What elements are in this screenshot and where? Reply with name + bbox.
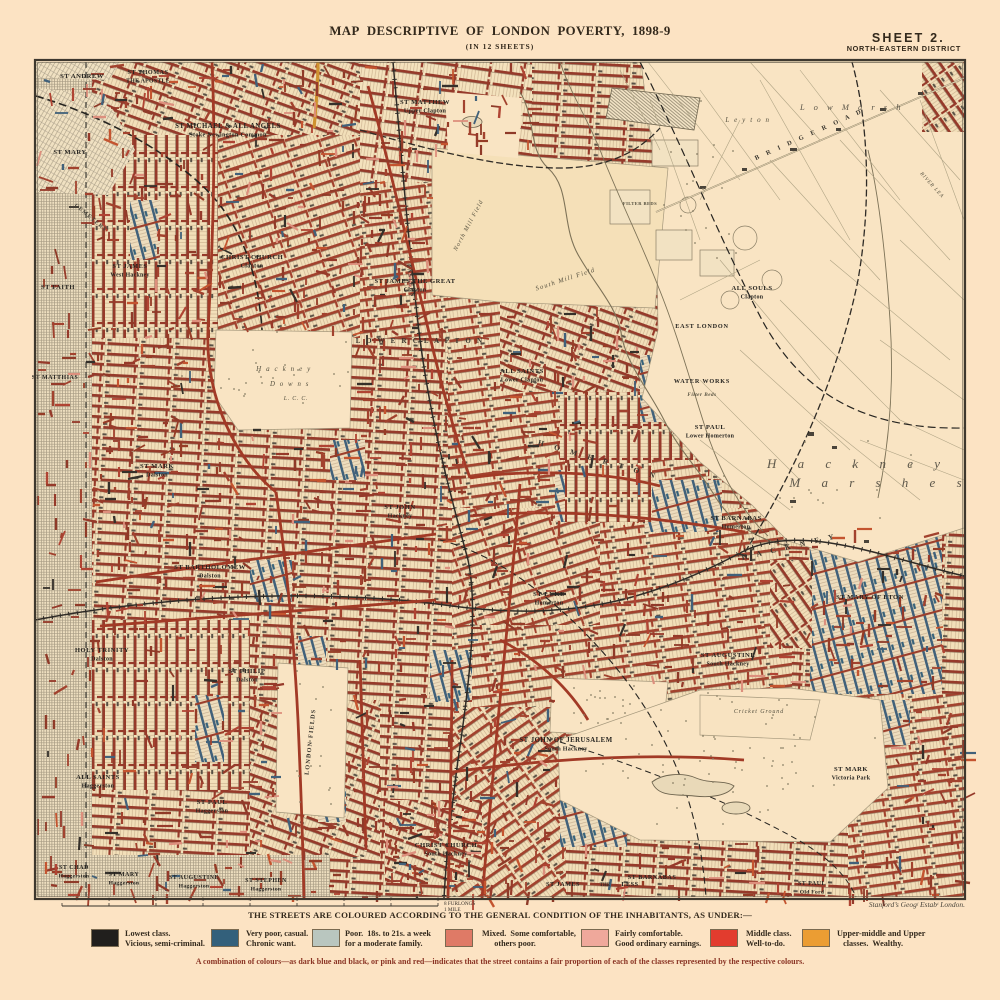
- svg-text:ST MARY OF ETON: ST MARY OF ETON: [836, 594, 904, 601]
- svg-text:5: 5: [296, 897, 299, 903]
- svg-text:ST BARNABAS: ST BARNABAS: [628, 874, 677, 881]
- svg-text:ST JAMES: ST JAMES: [113, 263, 148, 270]
- svg-text:D o w n s: D o w n s: [269, 381, 310, 388]
- svg-text:ST THOMAS: ST THOMAS: [128, 69, 169, 76]
- svg-text:ST MARY: ST MARY: [109, 872, 140, 878]
- svg-text:EAST LONDON: EAST LONDON: [675, 323, 729, 330]
- svg-text:ST PAUL: ST PAUL: [695, 424, 726, 431]
- svg-text:Dalston: Dalston: [199, 574, 221, 580]
- svg-text:ST MATTHIAS: ST MATTHIAS: [32, 375, 79, 381]
- svg-text:Victoria Park: Victoria Park: [832, 776, 871, 782]
- svg-text:2: 2: [155, 897, 158, 903]
- svg-text:South Hackney: South Hackney: [424, 852, 467, 858]
- svg-text:Haggerston: Haggerston: [251, 887, 282, 893]
- svg-text:Filter Beds: Filter Beds: [687, 392, 716, 398]
- svg-text:ST CHAD: ST CHAD: [59, 865, 89, 871]
- svg-text:ST MICHAEL & ALL ANGELS: ST MICHAEL & ALL ANGELS: [175, 123, 281, 130]
- svg-text:Haggerston: Haggerston: [82, 784, 115, 790]
- svg-text:Lower Homerton: Lower Homerton: [686, 434, 735, 440]
- svg-text:ST JOHN OF JERUSALEM: ST JOHN OF JERUSALEM: [519, 737, 612, 744]
- svg-text:ST JAMES THE GREAT: ST JAMES THE GREAT: [374, 278, 455, 285]
- svg-text:Upper Clapton: Upper Clapton: [404, 109, 447, 115]
- svg-text:Old Ford: Old Ford: [800, 890, 825, 896]
- svg-text:L O W E R C L A P T O N: L O W E R C L A P T O N: [356, 337, 484, 345]
- svg-text:Stoke Newington Common: Stoke Newington Common: [189, 132, 267, 139]
- svg-text:Dalston: Dalston: [146, 473, 168, 479]
- svg-text:ST ANDREW: ST ANDREW: [60, 73, 104, 80]
- svg-text:Homerton: Homerton: [722, 525, 751, 531]
- svg-text:Haggerston: Haggerston: [196, 809, 229, 815]
- svg-text:7: 7: [390, 897, 393, 903]
- svg-text:H a c k n e y: H a c k n e y: [255, 365, 312, 373]
- svg-text:Homerton: Homerton: [535, 601, 564, 607]
- svg-text:THE APOSTLE: THE APOSTLE: [126, 79, 170, 85]
- svg-text:ST BARTHOLOMEW: ST BARTHOLOMEW: [174, 564, 246, 571]
- svg-text:ST MARY: ST MARY: [53, 149, 86, 156]
- svg-text:FILTER BEDS: FILTER BEDS: [623, 201, 657, 206]
- svg-text:6: 6: [343, 897, 346, 903]
- svg-text:ST JOHN: ST JOHN: [384, 504, 415, 511]
- svg-text:Dalston: Dalston: [91, 657, 113, 663]
- svg-text:Haggerston: Haggerston: [59, 874, 90, 880]
- svg-text:ALL SAINTS: ALL SAINTS: [76, 774, 120, 781]
- svg-text:Clapton: Clapton: [741, 295, 764, 301]
- svg-text:South Hackney: South Hackney: [706, 662, 749, 668]
- svg-text:THE: THE: [600, 883, 611, 888]
- svg-text:Dalston: Dalston: [236, 678, 258, 684]
- svg-text:HOLY TRINITY: HOLY TRINITY: [75, 647, 129, 654]
- svg-text:ST MARK: ST MARK: [140, 463, 174, 470]
- svg-text:ST STEPHEN: ST STEPHEN: [245, 878, 287, 884]
- svg-text:ST AUGUSTINE: ST AUGUSTINE: [169, 875, 219, 881]
- svg-text:ST LUKE: ST LUKE: [533, 591, 565, 598]
- svg-text:Clapton: Clapton: [241, 264, 264, 270]
- svg-text:Hackney: Hackney: [388, 514, 413, 520]
- svg-text:L. C. C.: L. C. C.: [283, 396, 309, 402]
- svg-text:ST JAMES: ST JAMES: [546, 881, 580, 888]
- svg-text:ST AUGUSTINE: ST AUGUSTINE: [701, 652, 756, 659]
- svg-text:Cricket Ground: Cricket Ground: [734, 709, 784, 715]
- svg-text:ST PHILIP: ST PHILIP: [229, 668, 266, 675]
- svg-text:CHRIST CHURCH: CHRIST CHURCH: [221, 254, 284, 261]
- svg-text:1: 1: [108, 897, 111, 903]
- svg-text:LESS: LESS: [621, 881, 638, 888]
- svg-text:CHRIST CHURCH: CHRIST CHURCH: [415, 842, 478, 849]
- svg-text:ST PAUL: ST PAUL: [197, 799, 228, 806]
- svg-text:Stanford’s Geogʲ Estabᵗ London: Stanford’s Geogʲ Estabᵗ London.: [869, 900, 965, 909]
- svg-text:H a c k n e y: H a c k n e y: [766, 456, 949, 471]
- svg-text:Haggerston: Haggerston: [109, 881, 140, 887]
- svg-text:ST MARK: ST MARK: [834, 766, 868, 773]
- svg-text:3: 3: [202, 897, 205, 903]
- svg-text:L o w M a r s h: L o w M a r s h: [799, 102, 904, 112]
- svg-text:Haggerston: Haggerston: [179, 884, 210, 890]
- svg-text:WATER WORKS: WATER WORKS: [674, 378, 730, 385]
- svg-text:ST MATTHEW: ST MATTHEW: [400, 99, 450, 106]
- svg-text:ST BARNABAS: ST BARNABAS: [710, 515, 761, 522]
- svg-text:West Hackney: West Hackney: [110, 273, 149, 279]
- svg-text:ST PAUL: ST PAUL: [798, 881, 826, 887]
- svg-text:ST FAITH: ST FAITH: [41, 284, 75, 291]
- svg-text:L e y t o n: L e y t o n: [724, 116, 770, 124]
- svg-text:ALL SOULS: ALL SOULS: [732, 285, 773, 292]
- svg-text:M a r s h e s: M a r s h e s: [788, 475, 970, 490]
- svg-text:South Hackney: South Hackney: [544, 747, 587, 753]
- svg-text:8: 8: [437, 897, 440, 903]
- svg-text:Lower Clapton: Lower Clapton: [501, 378, 544, 384]
- svg-text:ALL SAINTS: ALL SAINTS: [500, 368, 544, 375]
- svg-text:4: 4: [249, 897, 252, 903]
